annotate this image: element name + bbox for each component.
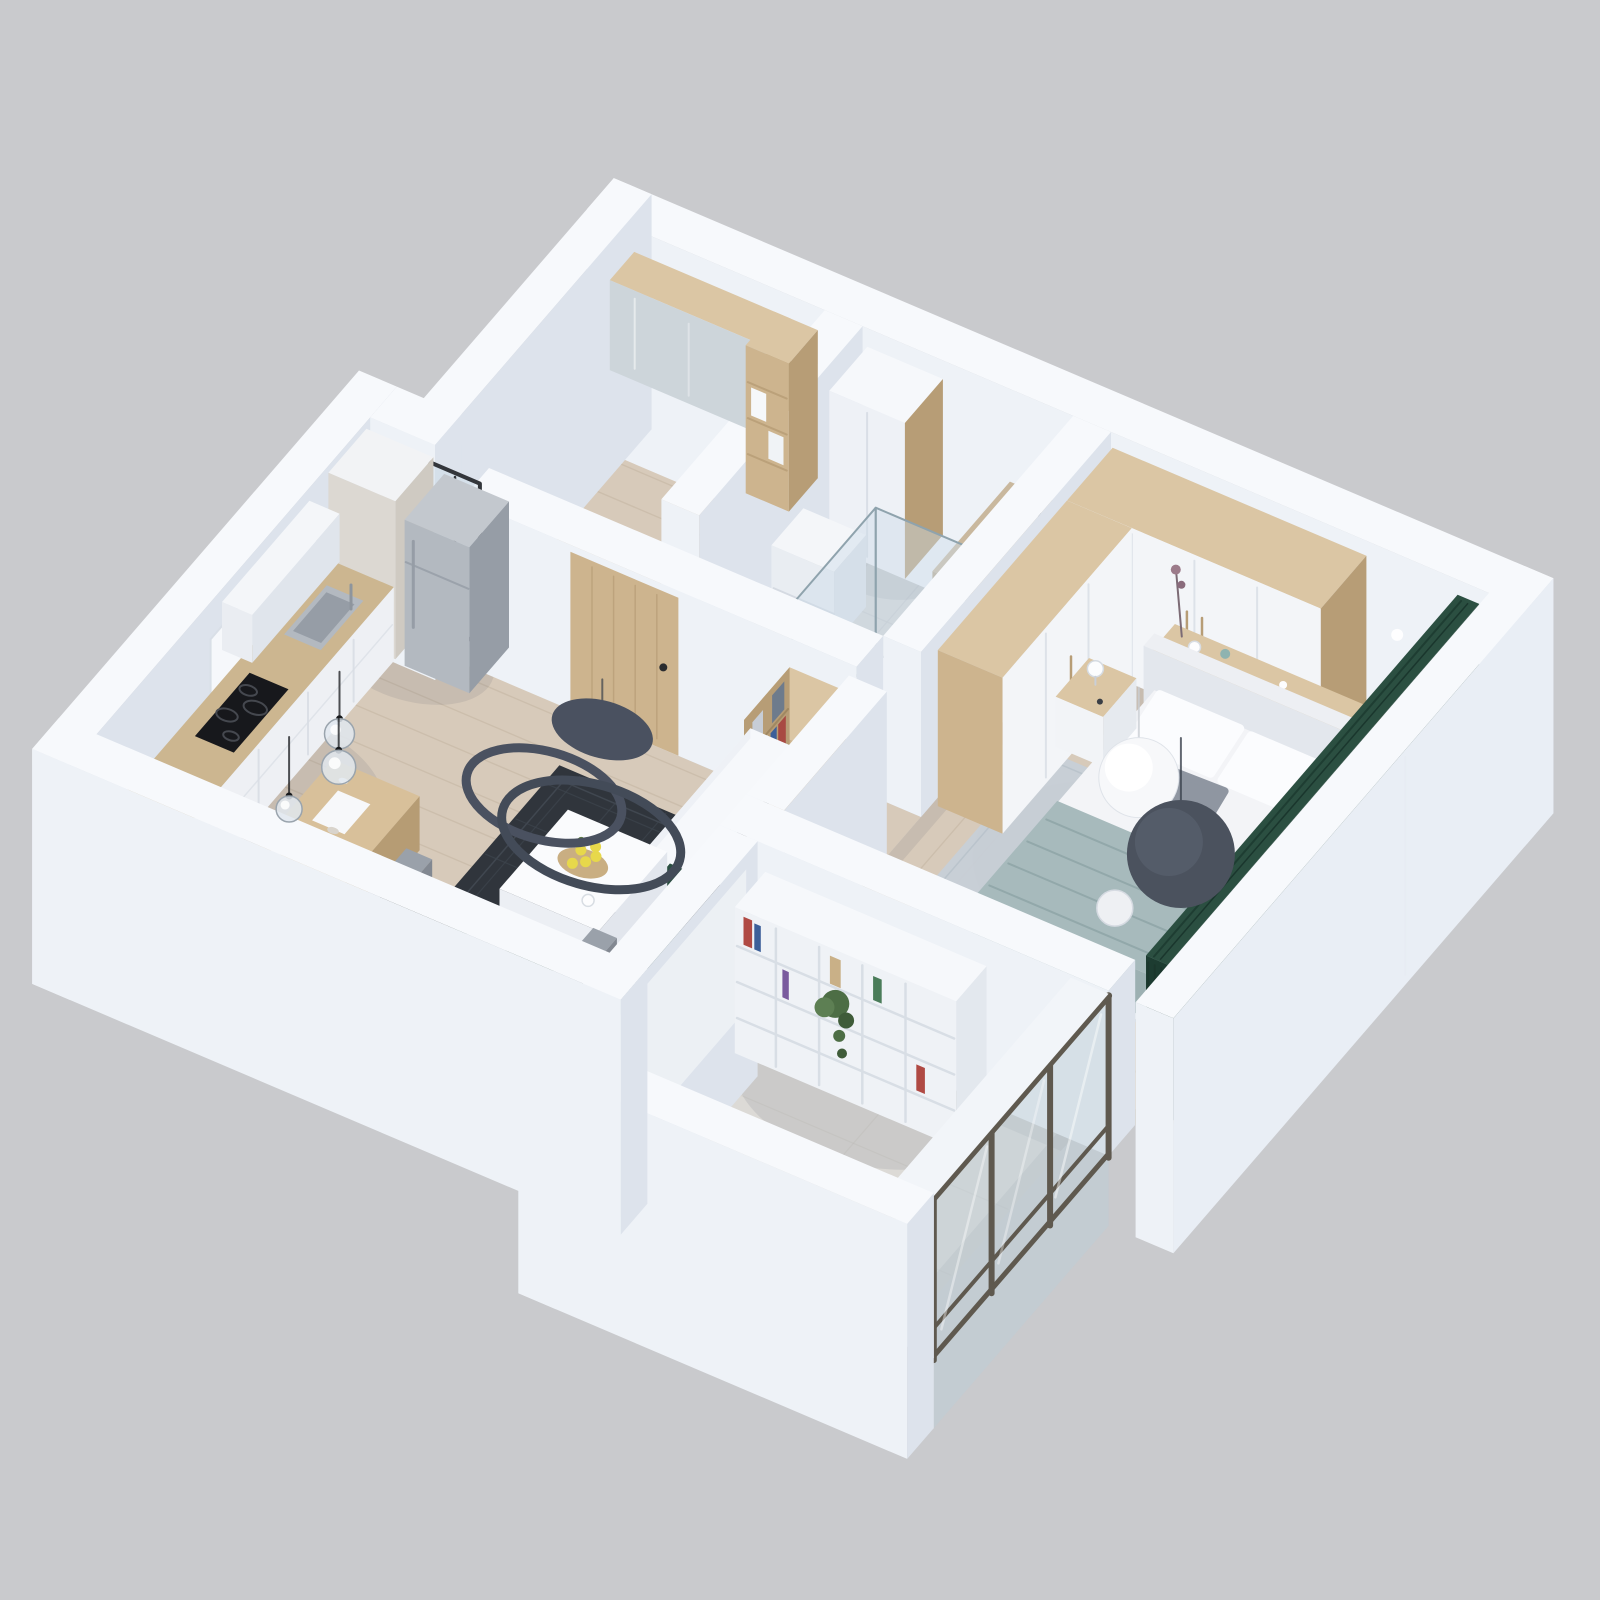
- floorplan-render: [0, 0, 1600, 1600]
- scene-svg: [0, 0, 1600, 1600]
